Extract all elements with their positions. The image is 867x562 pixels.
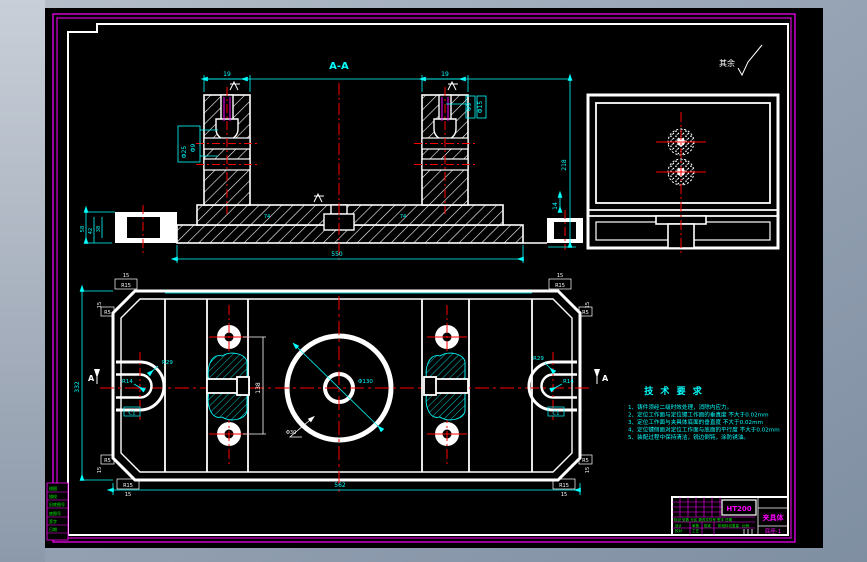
title-block-row: 设计 xyxy=(675,523,683,528)
title-block-row: 校对 xyxy=(675,528,683,533)
svg-text:R5: R5 xyxy=(582,458,589,464)
margin-label: 签字 xyxy=(49,518,57,524)
svg-text:C1: C1 xyxy=(128,411,135,417)
dim-slot-outer-right: R29 xyxy=(533,356,544,362)
dim-cbore-D: Φ15 xyxy=(477,101,484,114)
dim-slot-inner-right: R14 xyxy=(563,379,574,385)
svg-text:R5: R5 xyxy=(582,310,589,316)
sheet-number: 底座-1 xyxy=(765,527,781,535)
svg-text:R15: R15 xyxy=(123,483,133,489)
svg-text:15: 15 xyxy=(561,492,567,498)
tech-req-item: 5、装配过程中保持清洁，锐边倒钝，涂防锈油。 xyxy=(628,433,749,441)
dim-end-h3: 38 xyxy=(96,226,102,232)
svg-text:15: 15 xyxy=(585,467,591,473)
margin-strip: 描图 描校 旧底图号 底图号 签字 日期 xyxy=(47,483,68,540)
dim-bore-large: Φ25 xyxy=(181,146,188,159)
svg-text:R15: R15 xyxy=(559,483,569,489)
margin-label: 旧底图号 xyxy=(49,501,65,507)
dim-total-height: 218 xyxy=(561,159,568,171)
title-block-row: 批准 xyxy=(704,523,712,528)
tech-req-item: 1、铸件须经二级时效处理，消除内应力。 xyxy=(628,403,732,411)
dim-end-h2: 42 xyxy=(88,228,94,234)
svg-text:C1: C1 xyxy=(552,411,559,417)
margin-label: 描校 xyxy=(49,493,57,499)
dim-slot-left: 74 xyxy=(264,214,270,220)
dim-tower-width-left: 19 xyxy=(223,71,231,78)
dim-cbore-d: Φ9 xyxy=(466,103,473,112)
dim-slot-right: 74 xyxy=(400,214,406,220)
cad-viewport: A-A xyxy=(0,0,867,562)
title-block-weight: 重量 xyxy=(732,523,740,528)
tech-req-title: 技 术 要 求 xyxy=(644,385,703,397)
svg-text:138: 138 xyxy=(255,382,262,394)
dim-bore-small: Φ9 xyxy=(190,144,197,153)
svg-text:15: 15 xyxy=(125,492,131,498)
side-view xyxy=(588,95,778,256)
tech-req-item: 2、定位工作面与定位键工作面的垂直度 不大于0.02mm xyxy=(628,411,769,419)
drawing-canvas[interactable]: A-A xyxy=(0,0,867,562)
title-block: HT200 夹具体 底座-1 标记 处数 分区 更改文件号 签字 日期 设计 校… xyxy=(672,497,788,535)
svg-text:R15: R15 xyxy=(121,283,131,289)
dim-slot-outer-left: R29 xyxy=(162,360,173,366)
dim-end-h1: 58 xyxy=(80,226,86,232)
section-marker-left: A xyxy=(88,374,95,383)
section-label: A-A xyxy=(329,61,349,72)
svg-text:15: 15 xyxy=(97,467,103,473)
dim-width: 332 xyxy=(74,381,81,393)
title-block-stage: 阶段标记 xyxy=(718,523,732,528)
svg-text:R5: R5 xyxy=(104,458,111,464)
dim-slot-inner-left: R14 xyxy=(122,379,133,385)
dim-base-length: 550 xyxy=(331,251,343,258)
svg-text:15: 15 xyxy=(123,273,129,279)
title-block-row: 审核 xyxy=(692,523,700,528)
title-block-row: 工艺 xyxy=(692,528,700,533)
dim-tower-width-right: 19 xyxy=(441,71,449,78)
svg-text:15: 15 xyxy=(557,273,563,279)
surface-note-text: 其余 xyxy=(719,58,735,68)
svg-text:R5: R5 xyxy=(104,310,111,316)
dim-length: 562 xyxy=(334,482,346,489)
dim-hub: Φ30 xyxy=(286,430,296,436)
margin-label: 描图 xyxy=(49,485,57,491)
margin-label: 日期 xyxy=(49,526,57,532)
section-marker-right: A xyxy=(602,374,609,383)
svg-text:R15: R15 xyxy=(555,283,565,289)
dim-bore: Φ130 xyxy=(358,379,373,385)
tech-req-item: 4、定位键侧面对定位工作面与底面的平行度 不大于0.02mm xyxy=(628,426,780,434)
part-name: 夹具体 xyxy=(763,513,785,522)
material-value: HT200 xyxy=(726,505,751,513)
dim-step-height: 14 xyxy=(552,202,559,210)
plan-view: Φ130 Φ30 R29 R14 R29 R14 xyxy=(74,273,609,498)
tech-req-item: 3、定位工作面与夹具体底面的垂直度 不大于0.02mm xyxy=(628,418,763,426)
margin-label: 底图号 xyxy=(49,510,61,516)
title-block-header-row: 标记 处数 分区 更改文件号 签字 日期 xyxy=(674,517,733,522)
title-block-scale: 比例 xyxy=(742,523,750,528)
